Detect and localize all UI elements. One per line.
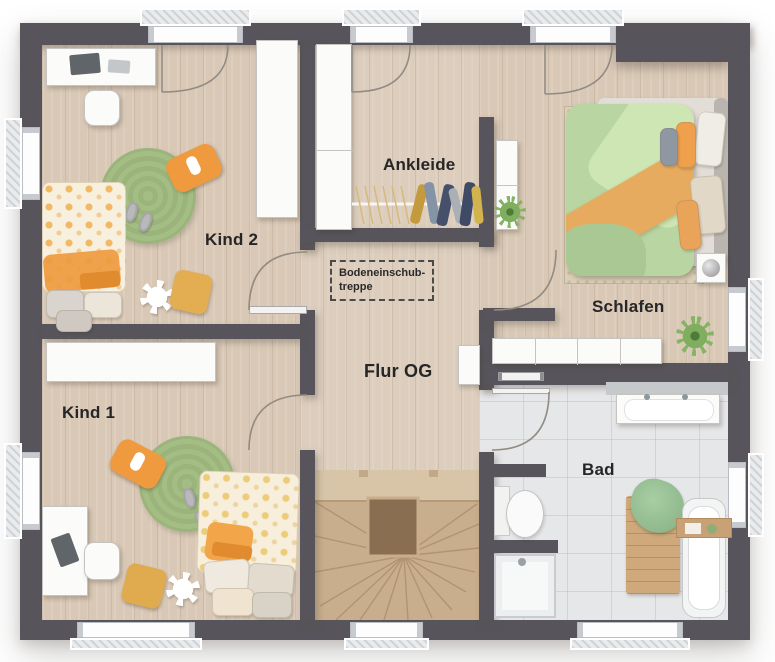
window-bad-bottom [577, 622, 683, 638]
wall-outer-left [20, 23, 42, 640]
attic-hatch-line1: Bodeneinschub- [339, 266, 425, 280]
floor-plan: Kind 2 Kind 1 Ankleide Schlafen Bad Flur… [0, 0, 775, 662]
floor-cushion-kind2 [168, 268, 213, 315]
window-kind2-left [22, 127, 40, 200]
wall-kind1-flur-upper [300, 310, 315, 395]
staircase [315, 470, 479, 620]
bed-kind2 [42, 182, 124, 330]
window-sill [4, 118, 22, 209]
window-kind1-bottom [77, 622, 195, 638]
window-ankleide-top [350, 26, 413, 43]
stair-landing [315, 470, 479, 502]
wall-toilet-niche-bottom [494, 540, 558, 553]
window-kind1-left [22, 452, 40, 530]
window-sill [70, 638, 202, 650]
room-label-flur: Flur OG [364, 361, 432, 382]
window-sill [344, 638, 429, 650]
desk-chair-kind2 [84, 90, 120, 126]
room-label-schlafen: Schlafen [592, 297, 664, 317]
window-schlafen-top [530, 26, 616, 43]
door-leaf-kind2 [249, 306, 307, 314]
window-sill [4, 443, 22, 539]
sink-basin [624, 399, 714, 421]
cabinet-flur-small [458, 345, 480, 385]
wall-ankleide-flur [300, 228, 494, 242]
wall-ankleide-schlafen [479, 117, 494, 247]
window-sill [748, 278, 764, 361]
keyboard-icon [108, 59, 131, 74]
lamp-icon [702, 259, 720, 277]
window-sill [140, 8, 251, 26]
laptop-icon [69, 53, 101, 76]
door-leaf-bad [492, 388, 550, 394]
desk-kind2 [46, 48, 156, 86]
pillow [676, 122, 696, 168]
wall-toilet-niche-top [494, 464, 546, 477]
plant-icon [494, 196, 526, 228]
wardrobe-ankleide [316, 44, 352, 230]
wardrobe-kind2 [256, 40, 298, 218]
faucet-icon [682, 394, 688, 400]
towel-rail [498, 372, 544, 381]
attic-hatch-label: Bodeneinschub- treppe [330, 260, 434, 301]
bath-caddy [676, 518, 732, 538]
window-schlafen-right [728, 287, 746, 352]
room-label-bad: Bad [582, 460, 615, 480]
faucet-icon [644, 394, 650, 400]
pillow [693, 111, 726, 168]
side-table-kind2 [140, 280, 174, 314]
attic-hatch-line2: treppe [339, 280, 425, 294]
desk-chair-kind1 [84, 542, 120, 580]
window-sill [522, 8, 624, 26]
wall-flur-bad [479, 452, 494, 620]
shower-drain-icon [518, 558, 526, 566]
side-table-kind1 [166, 572, 200, 606]
window-kind2-top [148, 26, 243, 43]
window-sill [748, 453, 764, 537]
toilet-bowl [506, 490, 544, 538]
room-label-kind2: Kind 2 [205, 230, 258, 250]
plant-icon [676, 316, 714, 356]
wall-kind1-flur-lower [300, 450, 315, 620]
wall-schlafen-nook [483, 308, 555, 321]
shelf-kind1 [46, 342, 216, 382]
window-stairs-bottom [350, 622, 423, 638]
wall-outer-top-right-block [616, 23, 728, 62]
stairwell-void [368, 498, 418, 556]
wall-kind2-flur [300, 45, 315, 250]
room-label-kind1: Kind 1 [62, 403, 115, 423]
sideboard-schlafen [492, 338, 662, 364]
room-label-ankleide: Ankleide [383, 155, 455, 175]
window-sill [342, 8, 421, 26]
bed-kind1 [198, 472, 296, 620]
window-sill [570, 638, 690, 650]
pillow [660, 128, 678, 166]
